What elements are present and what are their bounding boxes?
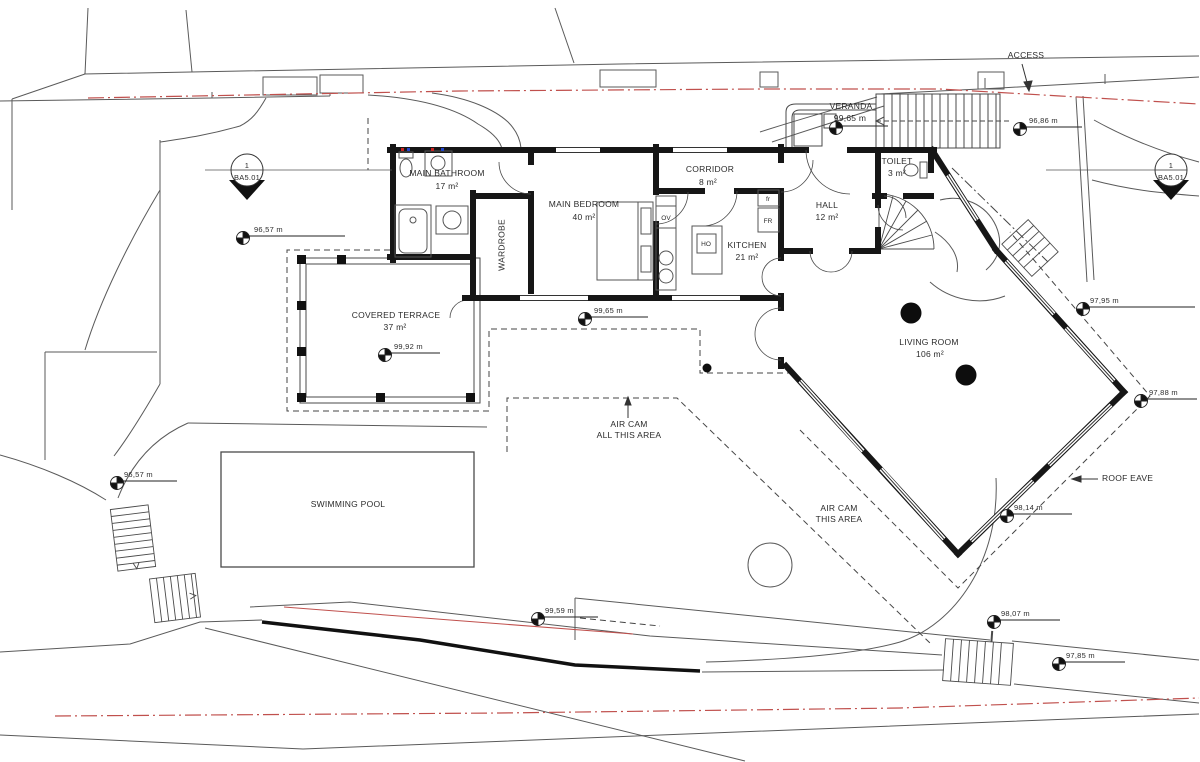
room-area-covered-terrace: 37 m²: [384, 322, 407, 333]
room-label-hall: HALL: [816, 200, 838, 211]
room-label-veranda: VERANDA: [830, 101, 873, 112]
room-area-toilet: 3 m²: [888, 168, 906, 179]
retaining-wall: [262, 622, 700, 671]
room-area-hall: 12 m²: [816, 212, 839, 223]
elevation-symbols: [111, 122, 1198, 671]
elevation-top-right: 96,86 m: [1029, 115, 1058, 126]
note-air-cam-this: AIR CAM THIS AREA: [816, 503, 863, 525]
roof-overhang-dashed: [287, 118, 1150, 645]
room-label-covered-terrace: COVERED TERRACE: [352, 310, 441, 321]
floor-plan-drawing: MAIN BATHROOM 17 m² MAIN BEDROOM 40 m² W…: [0, 0, 1200, 762]
building-walls: [390, 147, 1124, 554]
elevation-terrace: 99,92 m: [394, 341, 423, 352]
elevation-left-upper: 96,57 m: [254, 224, 283, 235]
elevation-right-upper: 97,95 m: [1090, 295, 1119, 306]
elevation-bottom-right-lower: 97,85 m: [1066, 650, 1095, 661]
room-label-corridor: CORRIDOR: [686, 164, 734, 175]
elevation-veranda: 99,65 m: [834, 113, 866, 124]
elevation-right-mid: 97,88 m: [1149, 387, 1178, 398]
appliance-label-fridge: FR: [764, 216, 773, 227]
room-area-living-room: 106 m²: [916, 349, 944, 360]
room-label-toilet: TOILET: [881, 156, 912, 167]
appliance-label-oven: OV: [661, 213, 670, 224]
room-label-main-bedroom: MAIN BEDROOM: [549, 199, 620, 210]
elevation-bottom-middle: 99,59 m: [545, 605, 574, 616]
elevation-below-living: 98,14 m: [1014, 502, 1043, 513]
room-label-kitchen: KITCHEN: [727, 240, 766, 251]
note-air-cam-all: AIR CAM ALL THIS AREA: [597, 419, 662, 441]
room-label-main-bathroom: MAIN BATHROOM: [409, 168, 484, 179]
section-marker-left-code: BA5.01: [234, 172, 260, 183]
spiral-stair: [879, 194, 934, 249]
room-area-main-bedroom: 40 m²: [573, 212, 596, 223]
section-marker-right-code: BA5.01: [1158, 172, 1184, 183]
section-marker-right-number: 1: [1169, 160, 1173, 171]
elevation-left-lower: 96,57 m: [124, 469, 153, 480]
room-area-corridor: 8 m²: [699, 177, 717, 188]
room-area-main-bathroom: 17 m²: [436, 181, 459, 192]
section-marker-left-number: 1: [245, 160, 249, 171]
room-label-swimming-pool: SWIMMING POOL: [311, 499, 386, 510]
room-label-wardrobe: WARDROBE: [497, 219, 508, 271]
note-roof-eave: ROOF EAVE: [1102, 473, 1153, 484]
appliance-label-fridge-small: fr: [766, 194, 770, 205]
garden-stairs-left: [110, 505, 200, 623]
note-access: ACCESS: [1008, 50, 1044, 61]
appliance-label-hob: HO: [701, 239, 711, 250]
elevation-below-bedroom: 99,65 m: [594, 305, 623, 316]
roads-terrain: [0, 8, 1199, 761]
site-plan-canvas: [0, 0, 1200, 762]
room-area-kitchen: 21 m²: [736, 252, 759, 263]
elevation-bottom-right-upper: 98,07 m: [1001, 608, 1030, 619]
room-label-living-room: LIVING ROOM: [899, 337, 958, 348]
